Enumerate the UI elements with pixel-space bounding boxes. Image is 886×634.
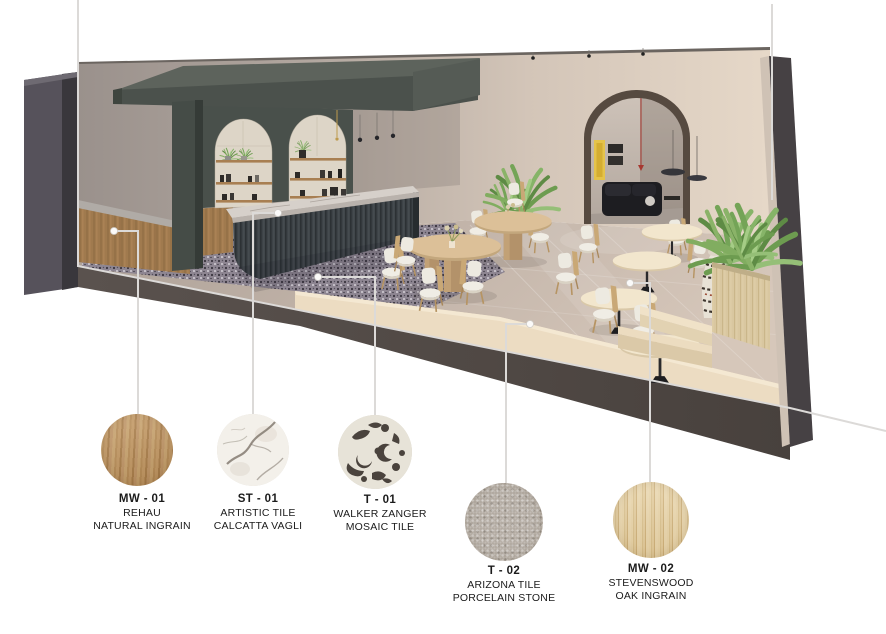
saucer-lamp (687, 175, 707, 181)
material-swatch-wood-icon (101, 414, 173, 486)
material-product: PORCELAIN STONE (429, 592, 579, 605)
leader-dot-mw02 (627, 280, 634, 287)
material-product: MOSAIC TILE (305, 521, 455, 534)
material-presentation-board: MW - 01 REHAU NATURAL INGRAIN ST - 01 AR… (0, 0, 886, 634)
cafe-section-rendering (0, 0, 886, 634)
material-brand: STEVENSWOOD (576, 577, 726, 590)
leader-dot-t01 (315, 274, 322, 281)
material-label: T - 02 ARIZONA TILE PORCELAIN STONE (429, 565, 579, 605)
material-code: MW - 02 (576, 563, 726, 575)
material-brand: WALKER ZANGER (305, 508, 455, 521)
material-code: T - 01 (305, 494, 455, 506)
material-brand: ARIZONA TILE (429, 579, 579, 592)
material-product: OAK INGRAIN (576, 590, 726, 603)
material-label: T - 01 WALKER ZANGER MOSAIC TILE (305, 494, 455, 534)
material-swatch-mosaic-icon (338, 415, 412, 489)
material-swatch-stone-icon (465, 483, 543, 561)
leader-dot-mw01 (111, 228, 118, 235)
canopy-column (172, 100, 203, 271)
material-swatch-marble-icon (217, 414, 289, 486)
arch-niche-left (215, 119, 272, 208)
leader-dot-st01 (275, 210, 282, 217)
leader-dot-t02 (527, 321, 534, 328)
material-swatch-oak-icon (613, 482, 689, 558)
material-code: T - 02 (429, 565, 579, 577)
material-label: MW - 02 STEVENSWOOD OAK INGRAIN (576, 563, 726, 603)
saucer-lamp (661, 169, 685, 176)
left-cut-wall (24, 72, 78, 295)
